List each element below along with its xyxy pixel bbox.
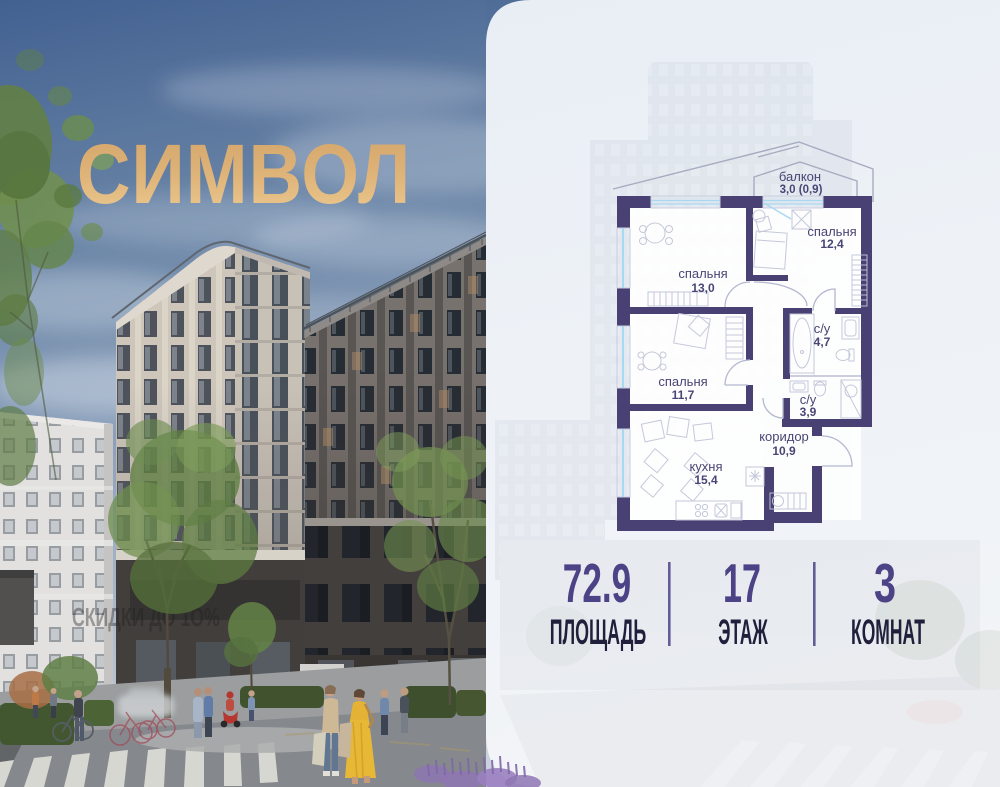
svg-text:балкон: балкон — [779, 169, 821, 184]
svg-text:4,7: 4,7 — [814, 335, 831, 349]
svg-text:спальня: спальня — [678, 266, 727, 281]
svg-text:КОМНАТ: КОМНАТ — [851, 612, 925, 651]
svg-text:72.9: 72.9 — [563, 552, 631, 614]
svg-text:3,0 (0,9): 3,0 (0,9) — [780, 184, 823, 196]
svg-text:ПЛОЩАДЬ: ПЛОЩАДЬ — [550, 613, 646, 652]
svg-text:коридор: коридор — [759, 429, 809, 444]
svg-text:13,0: 13,0 — [691, 281, 715, 295]
svg-text:10,9: 10,9 — [772, 444, 796, 458]
svg-text:15,4: 15,4 — [694, 473, 718, 487]
svg-text:3,9: 3,9 — [800, 405, 817, 419]
svg-text:СИМВОЛ: СИМВОЛ — [77, 127, 411, 221]
svg-text:ЭТАЖ: ЭТАЖ — [718, 612, 768, 651]
svg-text:спальня: спальня — [658, 374, 707, 389]
svg-text:3: 3 — [874, 554, 896, 615]
svg-text:11,7: 11,7 — [672, 388, 695, 402]
svg-text:кухня: кухня — [689, 459, 722, 474]
svg-text:17: 17 — [723, 553, 761, 614]
svg-text:12,4: 12,4 — [820, 237, 844, 251]
svg-text:с/у: с/у — [814, 321, 831, 336]
